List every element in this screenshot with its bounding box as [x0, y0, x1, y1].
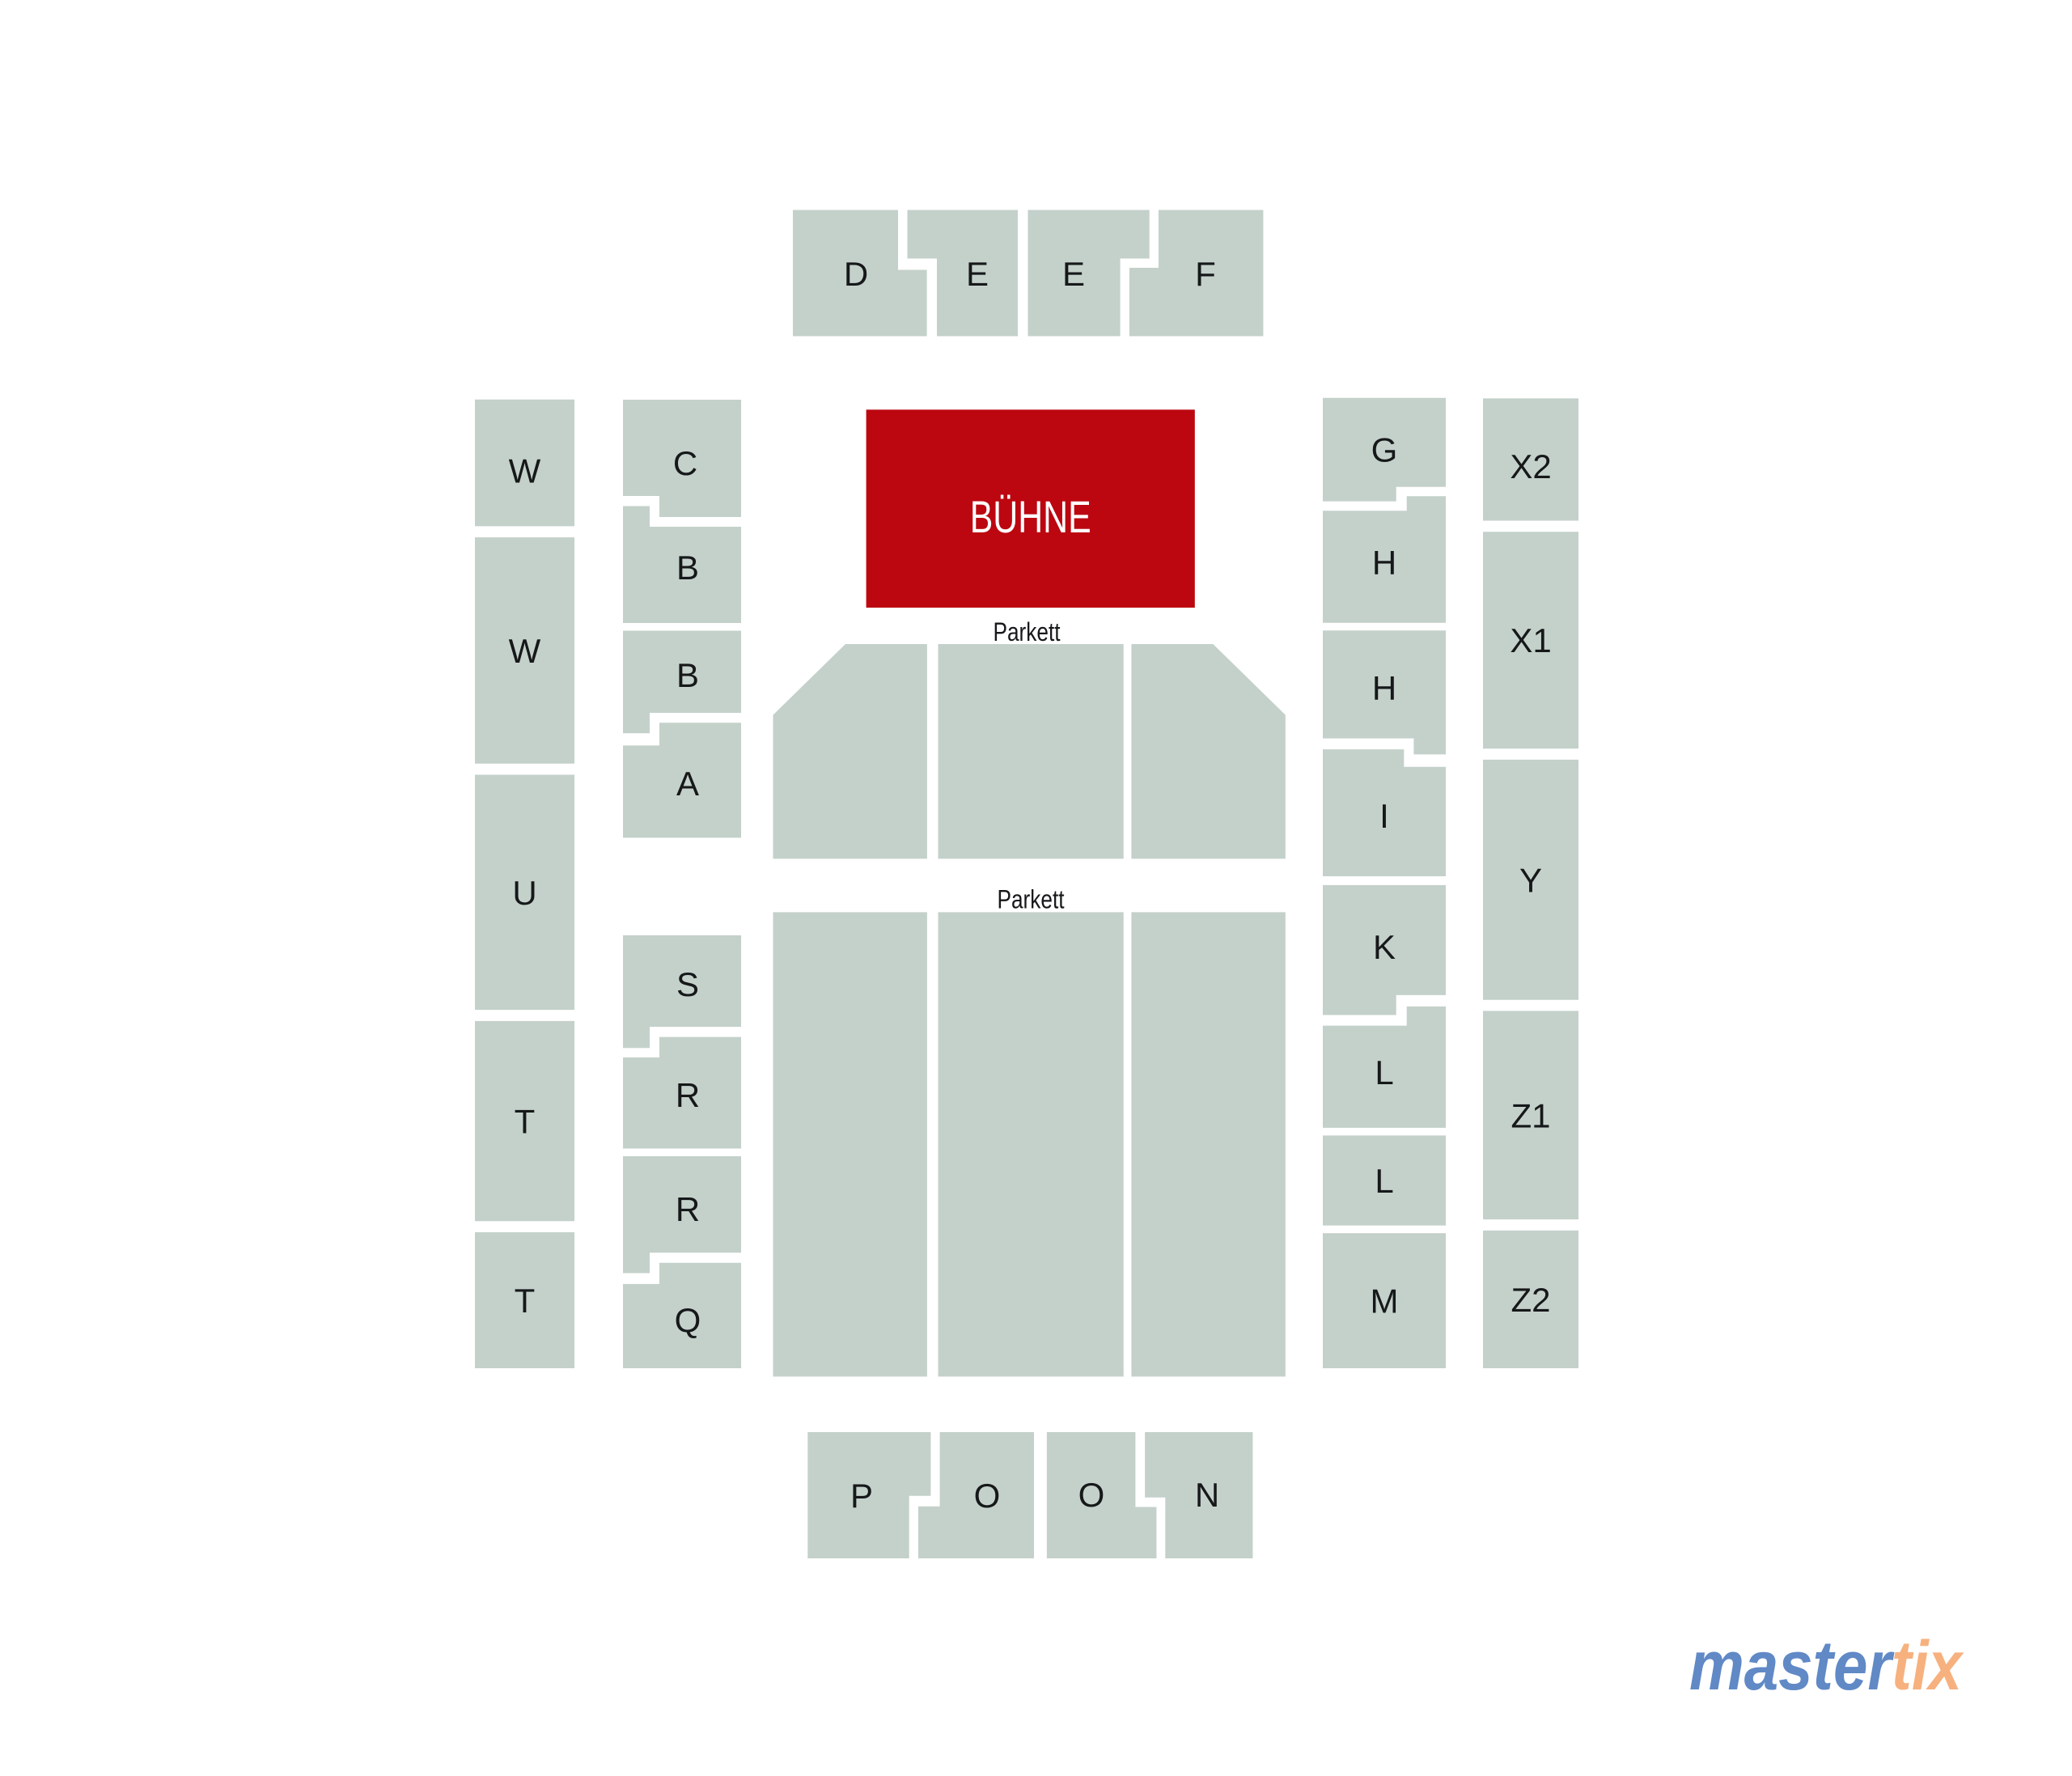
- svg-text:X1: X1: [1510, 621, 1551, 659]
- svg-text:R: R: [676, 1076, 700, 1114]
- svg-text:W: W: [509, 452, 541, 490]
- svg-text:master: master: [1689, 1627, 1895, 1705]
- svg-text:E: E: [966, 255, 989, 293]
- svg-text:O: O: [974, 1477, 1001, 1515]
- svg-text:Z1: Z1: [1511, 1096, 1550, 1134]
- svg-text:L: L: [1375, 1053, 1393, 1091]
- svg-text:D: D: [844, 255, 868, 293]
- svg-text:K: K: [1373, 928, 1396, 966]
- svg-text:F: F: [1195, 255, 1216, 293]
- svg-text:Q: Q: [675, 1301, 701, 1339]
- svg-text:BÜHNE: BÜHNE: [970, 491, 1091, 542]
- svg-text:X2: X2: [1510, 447, 1551, 485]
- svg-text:O: O: [1078, 1476, 1105, 1514]
- svg-text:H: H: [1372, 669, 1396, 707]
- svg-text:Parkett: Parkett: [998, 884, 1065, 913]
- svg-text:R: R: [676, 1190, 700, 1228]
- svg-text:U: U: [512, 874, 536, 912]
- svg-text:B: B: [676, 656, 699, 694]
- svg-text:T: T: [515, 1103, 536, 1141]
- svg-text:S: S: [676, 965, 699, 1003]
- svg-text:C: C: [673, 444, 697, 482]
- svg-text:Z2: Z2: [1511, 1281, 1550, 1319]
- svg-text:N: N: [1195, 1476, 1219, 1514]
- svg-text:G: G: [1371, 431, 1398, 469]
- svg-text:L: L: [1375, 1162, 1393, 1200]
- svg-text:W: W: [509, 632, 541, 670]
- svg-text:Y: Y: [1519, 861, 1542, 899]
- svg-text:B: B: [676, 549, 699, 587]
- svg-text:E: E: [1062, 255, 1085, 293]
- svg-text:M: M: [1371, 1282, 1399, 1320]
- svg-text:A: A: [676, 765, 699, 803]
- svg-text:I: I: [1379, 797, 1389, 835]
- svg-text:H: H: [1372, 544, 1396, 582]
- svg-text:tix: tix: [1892, 1627, 1964, 1705]
- svg-text:P: P: [850, 1477, 873, 1515]
- svg-text:T: T: [515, 1282, 536, 1320]
- svg-text:Parkett: Parkett: [994, 617, 1061, 646]
